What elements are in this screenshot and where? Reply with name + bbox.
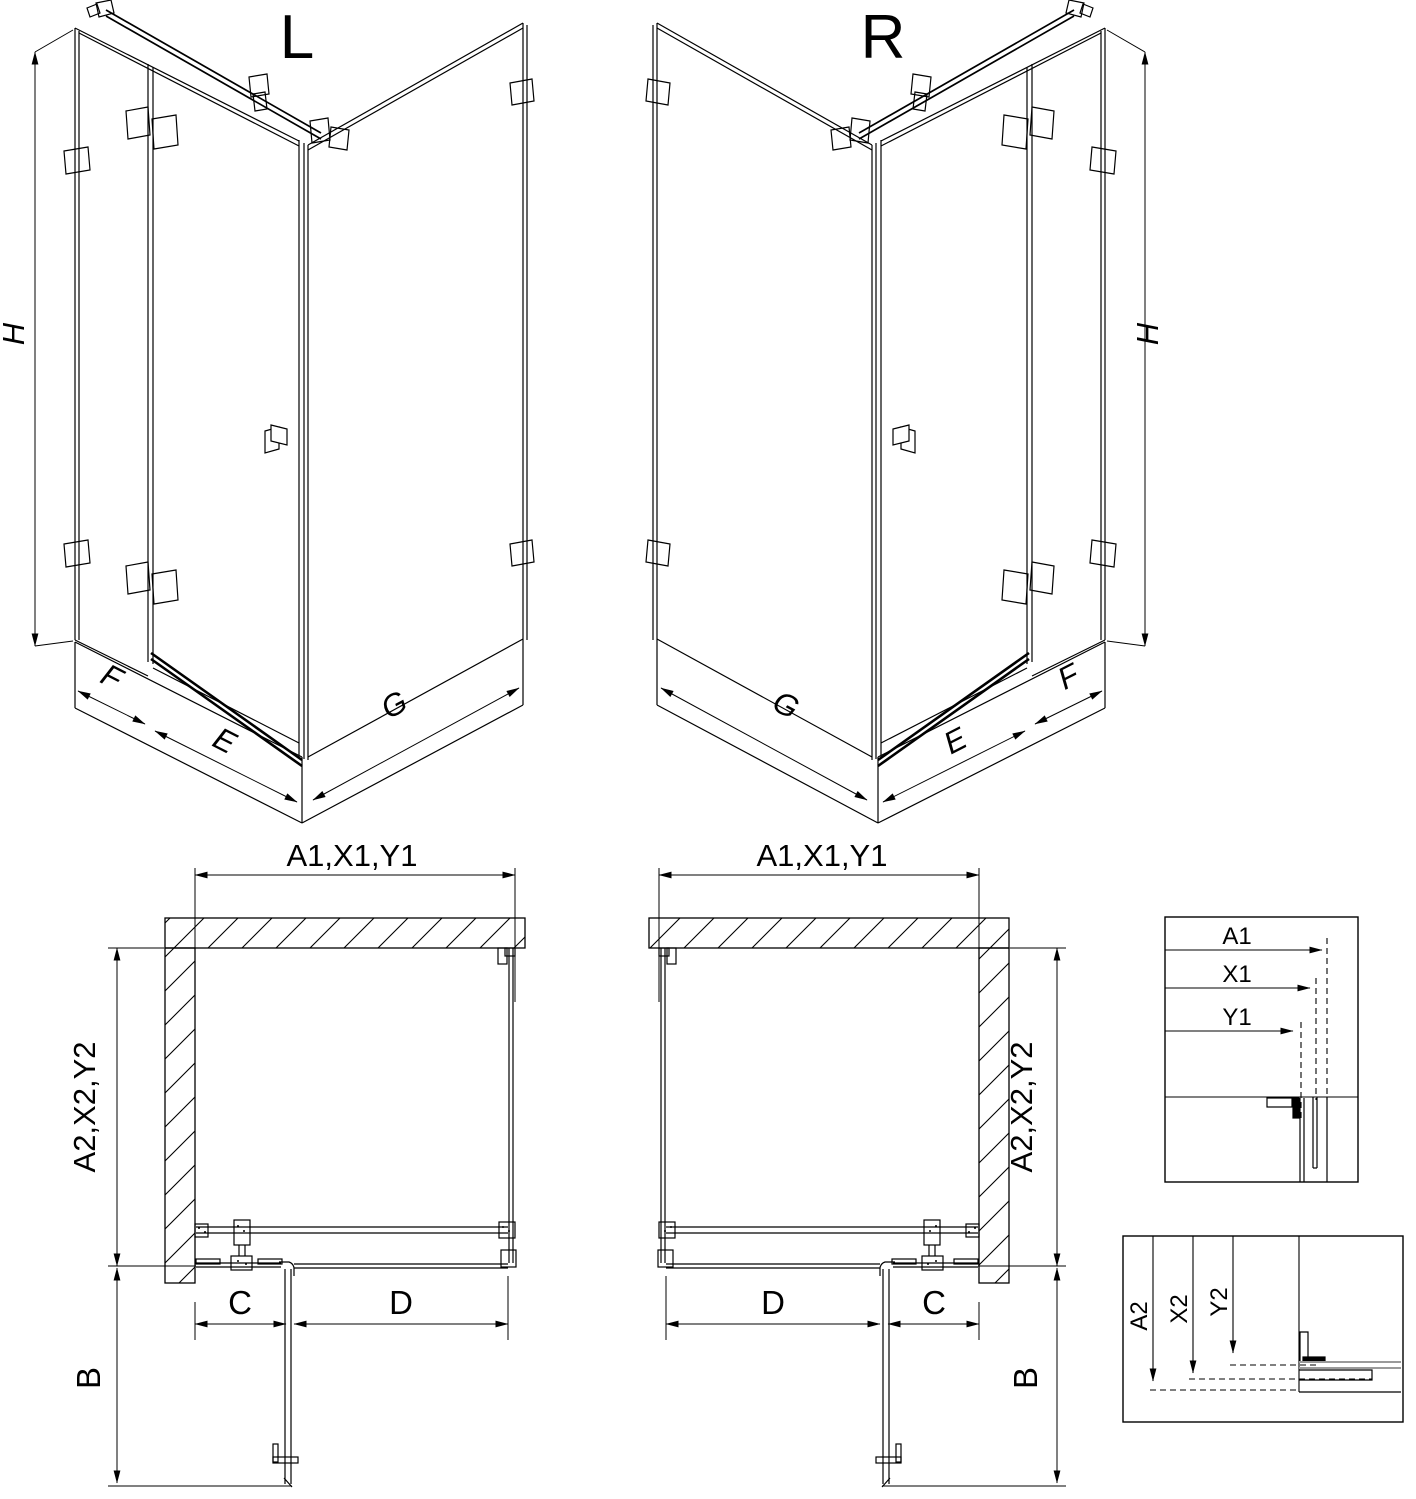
a1-detail-label: A1 (1222, 923, 1251, 950)
y2-detail-label: Y2 (1206, 1287, 1233, 1316)
b-dim-label-left: B (70, 1367, 107, 1389)
shower-enclosure-drawing: L H F E G R H F E G A1,X1,Y1 A2,X2,Y2 B … (0, 0, 1416, 1499)
d-dim-label-left: D (389, 1284, 413, 1321)
y1-detail-label: Y1 (1222, 1004, 1251, 1031)
x2-detail-label: X2 (1166, 1294, 1193, 1323)
a2-dim-label-right: A2,X2,Y2 (1004, 1042, 1039, 1173)
a2-dim-label-left: A2,X2,Y2 (67, 1042, 102, 1173)
wall-top-right-plan (649, 918, 1009, 948)
h-dim-label-left: H (0, 322, 31, 345)
a1-dim-label-right: A1,X1,Y1 (757, 838, 888, 873)
a1-dim-label-left: A1,X1,Y1 (287, 838, 418, 873)
b-dim-label-right: B (1007, 1367, 1044, 1389)
technical-drawing-page: L H F E G R H F E G A1,X1,Y1 A2,X2,Y2 B … (0, 0, 1416, 1499)
d-dim-label-right: D (761, 1284, 785, 1321)
c-dim-label-right: C (922, 1284, 946, 1321)
a2-detail-label: A2 (1126, 1301, 1153, 1330)
variant-label-r: R (861, 3, 906, 72)
c-dim-label-left: C (228, 1284, 252, 1321)
wall-side-left-plan (165, 948, 195, 1283)
h-dim-label-right: H (1130, 322, 1165, 345)
x1-detail-label: X1 (1222, 961, 1251, 988)
variant-label-l: L (280, 3, 314, 72)
wall-top-left-plan (165, 918, 525, 948)
